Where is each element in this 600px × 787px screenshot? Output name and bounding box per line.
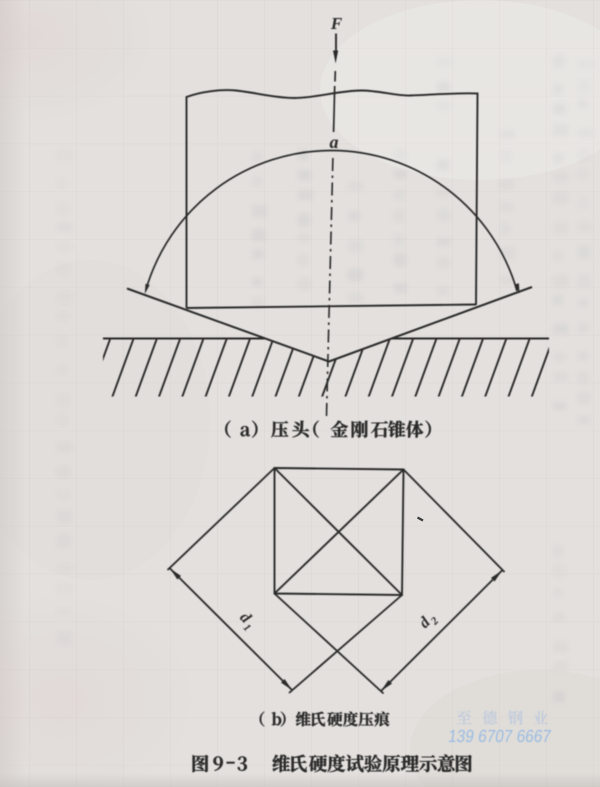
svg-text:a: a (330, 132, 339, 152)
svg-text:139 6707 6667: 139 6707 6667 (447, 726, 553, 746)
svg-text:F: F (330, 14, 343, 33)
